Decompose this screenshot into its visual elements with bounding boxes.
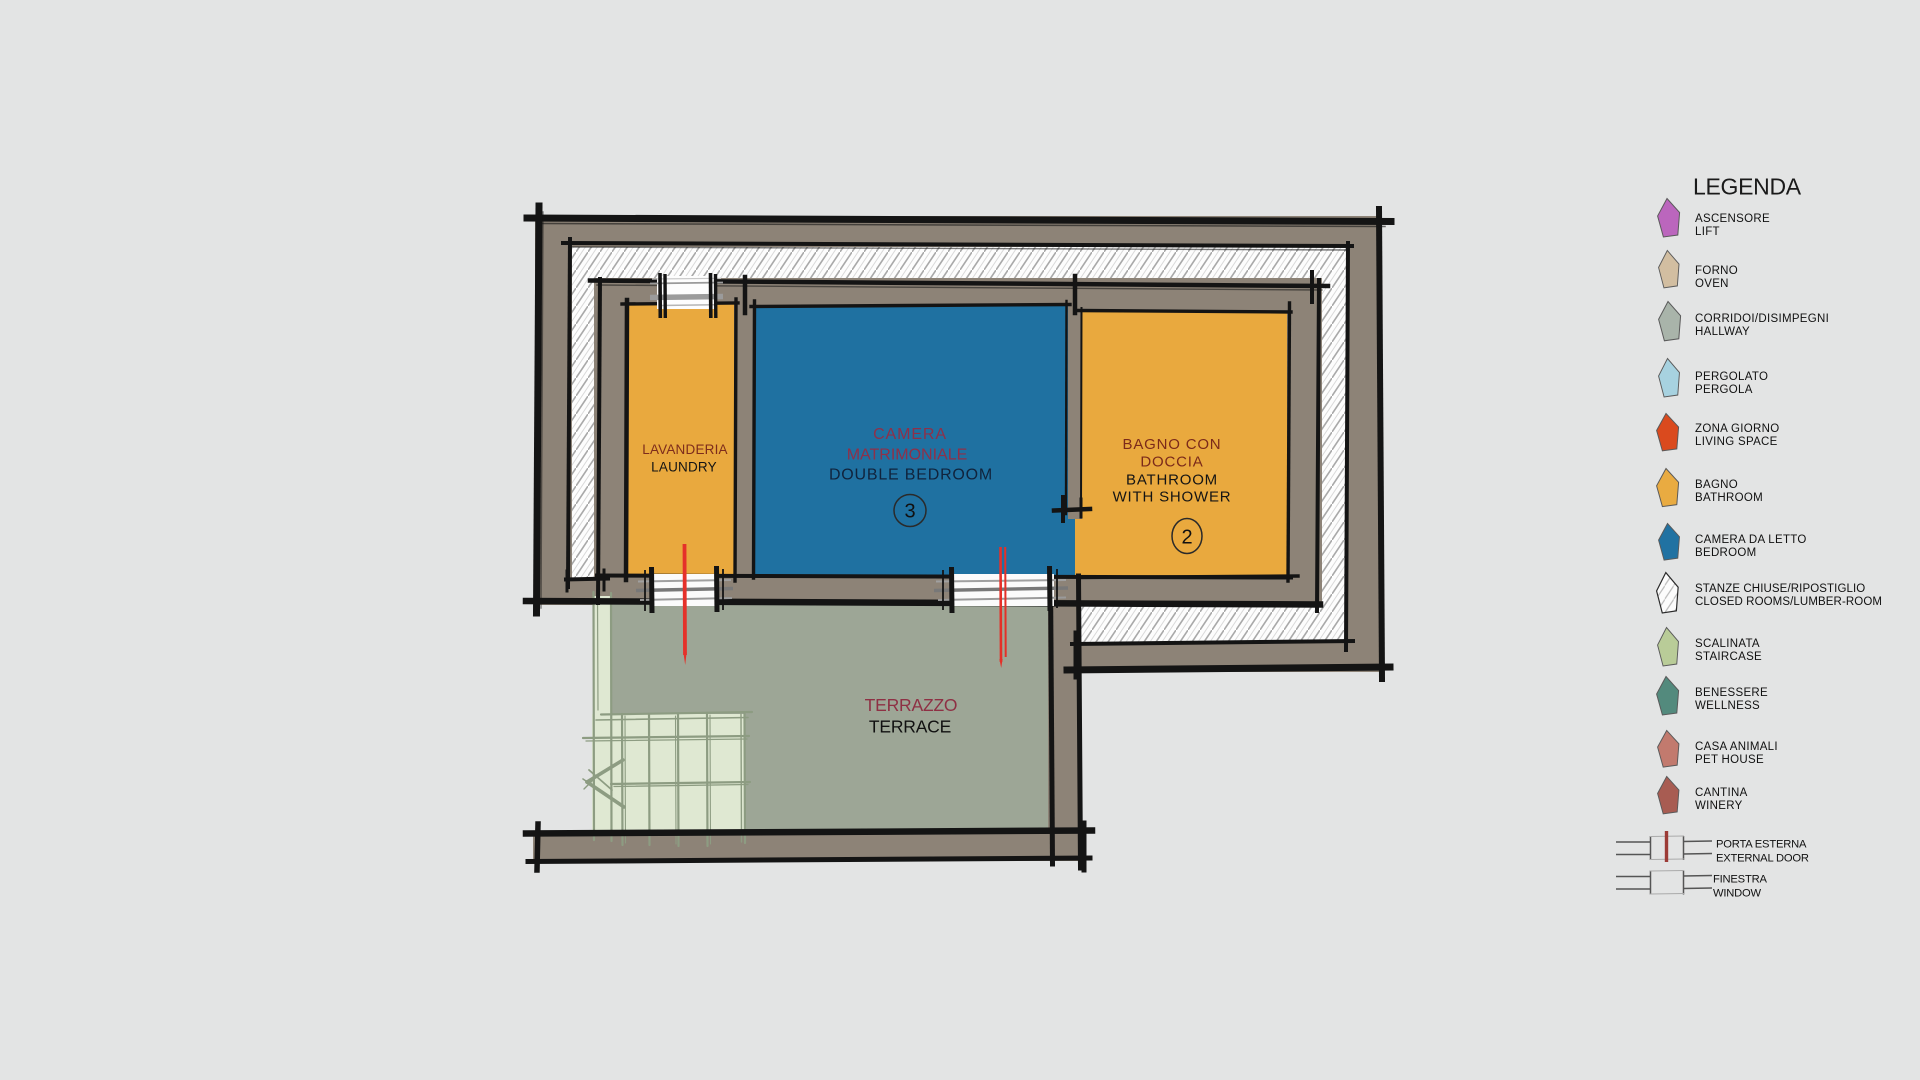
svg-text:FINESTRA: FINESTRA — [1713, 874, 1767, 886]
svg-text:BEDROOM: BEDROOM — [1695, 547, 1757, 559]
svg-text:BAGNO: BAGNO — [1695, 479, 1738, 491]
svg-text:SCALINATA: SCALINATA — [1695, 638, 1760, 650]
svg-text:CLOSED ROOMS/LUMBER-ROOM: CLOSED ROOMS/LUMBER-ROOM — [1695, 596, 1882, 608]
svg-text:EXTERNAL DOOR: EXTERNAL DOOR — [1716, 853, 1809, 865]
svg-text:CAMERA DA LETTO: CAMERA DA LETTO — [1695, 534, 1807, 546]
svg-text:WINERY: WINERY — [1695, 800, 1743, 812]
svg-text:PET HOUSE: PET HOUSE — [1695, 754, 1764, 766]
svg-text:LIVING SPACE: LIVING SPACE — [1695, 436, 1778, 448]
svg-text:WITH SHOWER: WITH SHOWER — [1113, 489, 1232, 506]
svg-text:STAIRCASE: STAIRCASE — [1695, 651, 1762, 663]
svg-text:BATHROOM: BATHROOM — [1126, 472, 1218, 489]
svg-text:ASCENSORE: ASCENSORE — [1695, 213, 1770, 225]
svg-text:LEGENDA: LEGENDA — [1693, 174, 1802, 200]
svg-text:CAMERA: CAMERA — [873, 426, 947, 443]
svg-text:MATRIMONIALE: MATRIMONIALE — [847, 447, 968, 464]
svg-text:BATHROOM: BATHROOM — [1695, 492, 1763, 504]
svg-text:BAGNO CON: BAGNO CON — [1123, 436, 1222, 453]
svg-text:TERRAZZO: TERRAZZO — [865, 695, 958, 715]
svg-text:WINDOW: WINDOW — [1713, 888, 1762, 900]
svg-text:PERGOLATO: PERGOLATO — [1695, 371, 1768, 383]
svg-text:PORTA ESTERNA: PORTA ESTERNA — [1716, 839, 1807, 851]
svg-text:ZONA GIORNO: ZONA GIORNO — [1695, 423, 1779, 435]
svg-text:CORRIDOI/DISIMPEGNI: CORRIDOI/DISIMPEGNI — [1695, 313, 1829, 325]
svg-text:WELLNESS: WELLNESS — [1695, 700, 1760, 712]
svg-text:DOUBLE BEDROOM: DOUBLE BEDROOM — [829, 467, 993, 484]
svg-text:LAUNDRY: LAUNDRY — [651, 460, 717, 475]
svg-text:DOCCIA: DOCCIA — [1140, 454, 1203, 471]
svg-text:LIFT: LIFT — [1695, 226, 1720, 238]
svg-text:HALLWAY: HALLWAY — [1695, 326, 1750, 338]
svg-text:OVEN: OVEN — [1695, 278, 1729, 290]
svg-text:LAVANDERIA: LAVANDERIA — [642, 442, 728, 457]
svg-text:2: 2 — [1181, 527, 1192, 549]
svg-text:STANZE CHIUSE/RIPOSTIGLIO: STANZE CHIUSE/RIPOSTIGLIO — [1695, 583, 1865, 595]
svg-text:FORNO: FORNO — [1695, 265, 1738, 277]
svg-text:CANTINA: CANTINA — [1695, 787, 1748, 799]
svg-text:3: 3 — [904, 501, 915, 523]
svg-text:CASA ANIMALI: CASA ANIMALI — [1695, 741, 1778, 753]
svg-text:TERRACE: TERRACE — [869, 717, 951, 737]
svg-text:BENESSERE: BENESSERE — [1695, 687, 1768, 699]
svg-text:PERGOLA: PERGOLA — [1695, 384, 1753, 396]
